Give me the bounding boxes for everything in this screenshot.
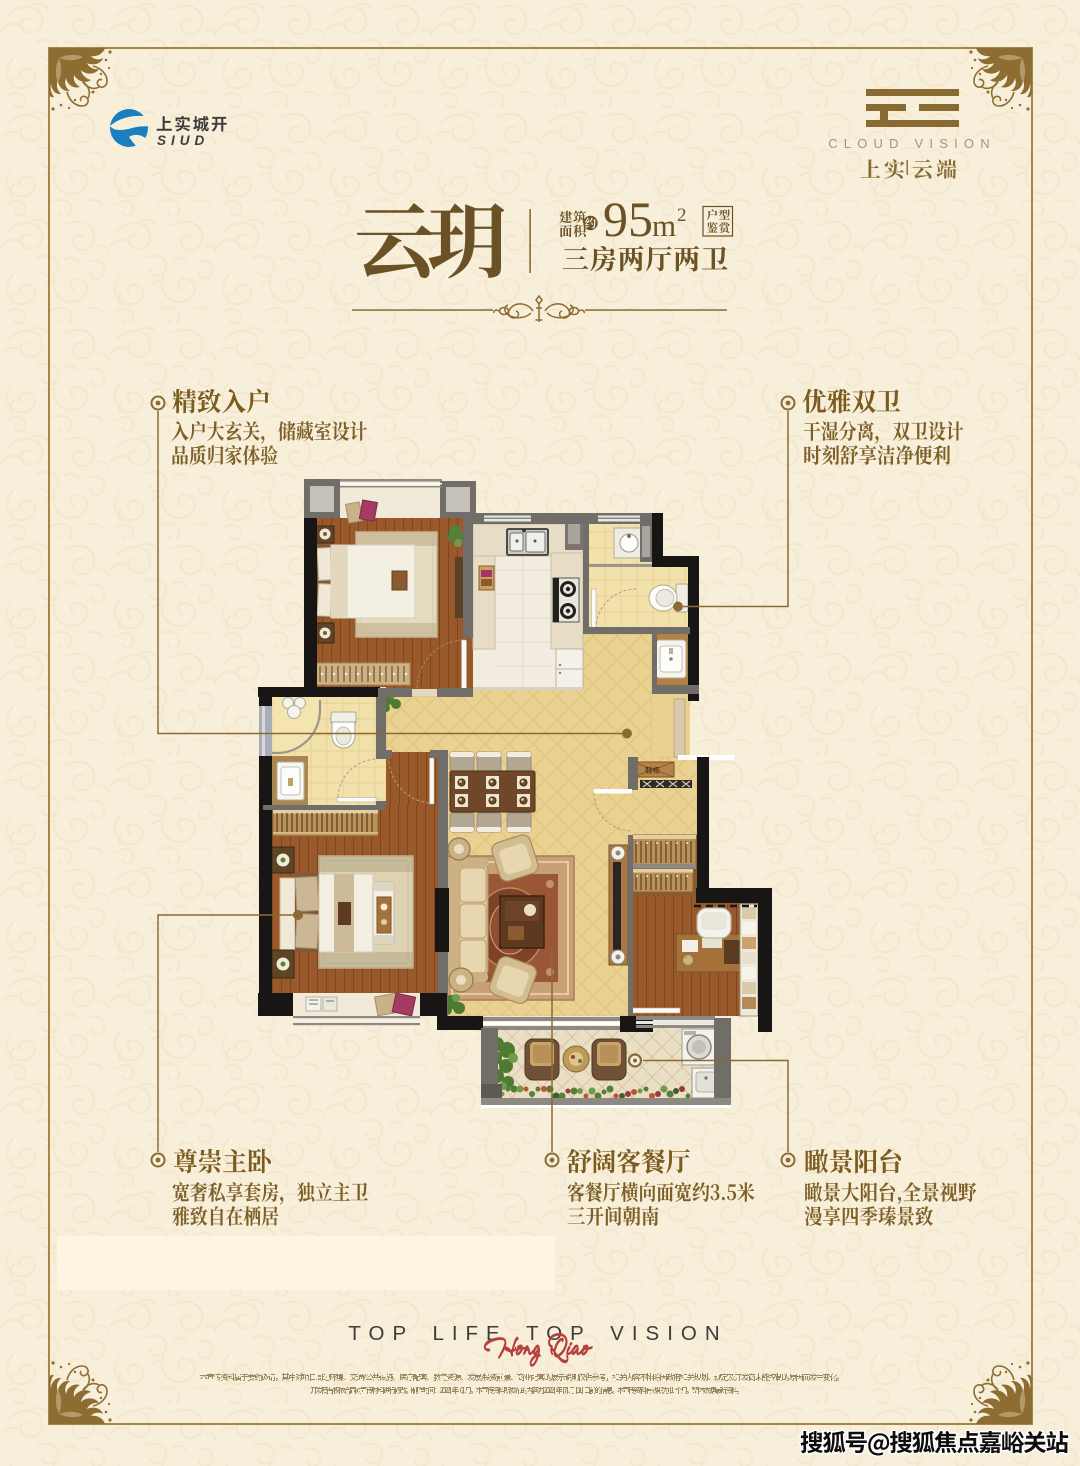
svg-text:TOP LIFE TOP VISION: TOP LIFE TOP VISION	[348, 1322, 727, 1345]
svg-text:CLOUD VISION: CLOUD VISION	[828, 136, 996, 151]
svg-text:m: m	[652, 208, 676, 243]
svg-text:SIUD: SIUD	[157, 133, 209, 148]
svg-text:2: 2	[677, 205, 687, 226]
svg-text:95: 95	[603, 191, 653, 247]
